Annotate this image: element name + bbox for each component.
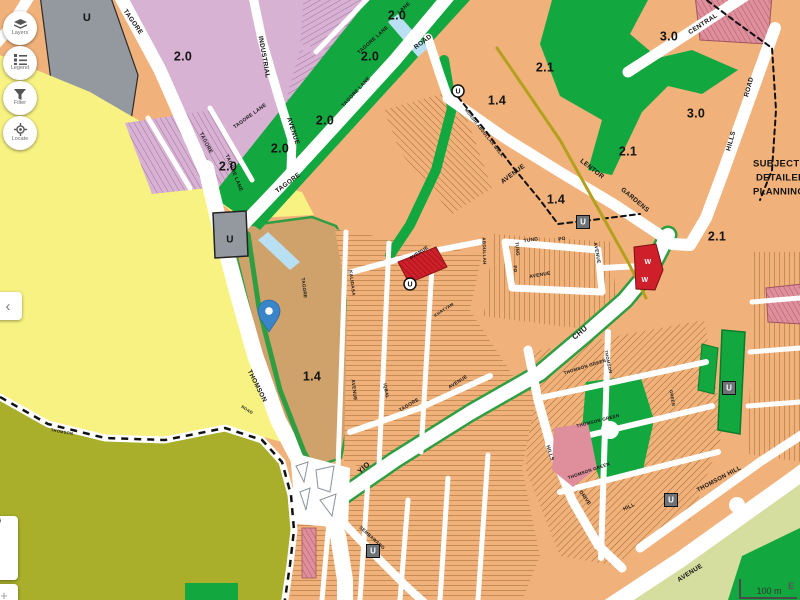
map-label: 2.1 [536, 60, 554, 74]
draw-polygon-tool[interactable] [0, 538, 16, 559]
layers-icon [14, 19, 27, 30]
u-marker-label: U [726, 384, 732, 393]
legend-icon [14, 54, 27, 65]
map-label: 2.0 [174, 49, 192, 63]
chevron-left-icon: ‹ [6, 298, 11, 315]
map-label: SUBJECT T [753, 159, 800, 170]
map-label: PLANNING [753, 187, 800, 198]
map-label: 2.1 [708, 229, 726, 243]
map-viewport: 2.02.02.02.02.02.02.12.12.11.41.41.43.03… [0, 0, 800, 600]
map-label: DETAILED [756, 173, 800, 184]
point-icon [0, 516, 1, 527]
map-label: 1.4 [303, 369, 321, 383]
park-small-bar [698, 344, 718, 394]
draw-toolbar [0, 516, 18, 580]
map-label: 3.0 [687, 106, 705, 120]
culdesac [729, 497, 745, 513]
zone-rose-row [302, 528, 316, 578]
street [602, 266, 640, 268]
filter-icon [14, 89, 26, 100]
map-label: 3.0 [660, 29, 678, 43]
map-label: 1.4 [488, 93, 506, 107]
draw-line-tool[interactable] [0, 517, 16, 538]
zone-rose-right [766, 284, 800, 324]
u-marker-label: U [580, 218, 586, 227]
zoom-in-button[interactable]: + [0, 584, 18, 600]
map-label: 2.0 [316, 113, 334, 127]
legend-button[interactable]: Legend [3, 46, 37, 80]
collapse-panel-button[interactable]: ‹ [0, 292, 22, 320]
u-marker-label: U [370, 547, 376, 556]
map-label: 2.1 [619, 144, 637, 158]
u-marker-label: U [668, 496, 674, 505]
map-label: 2.0 [271, 141, 289, 155]
u-marker-label: U [455, 88, 460, 95]
map-label: PO [513, 265, 519, 273]
map-label: U [83, 12, 91, 24]
plus-icon: + [0, 588, 8, 600]
map-label: W [642, 277, 649, 284]
filter-button[interactable]: Filter [3, 81, 37, 115]
attribution-text: E [788, 581, 794, 592]
culdesac [601, 421, 619, 439]
u-marker-label: U [407, 281, 412, 288]
locate-button-label: Locate [12, 137, 29, 143]
map-label: ABDULLAH [481, 237, 487, 265]
park-bottom-strip [185, 583, 238, 600]
map-label: 1.4 [547, 192, 565, 206]
map-label: W [645, 259, 652, 266]
scale-bar-label: 100 m [756, 586, 781, 596]
lots-right-edge [748, 252, 800, 462]
filter-button-label: Filter [14, 101, 26, 107]
layers-button[interactable]: Layers [3, 11, 37, 45]
draw-point-tool[interactable] [0, 559, 16, 580]
map-render-root: 2.02.02.02.02.02.02.12.12.11.41.41.43.03… [0, 0, 800, 600]
map-canvas[interactable]: 2.02.02.02.02.02.02.12.12.11.41.41.43.03… [0, 0, 800, 600]
legend-button-label: Legend [11, 66, 29, 72]
locate-button[interactable]: Locate [3, 116, 37, 150]
map-label: PO [558, 236, 566, 243]
layers-button-label: Layers [12, 31, 29, 37]
map-label: U [226, 235, 234, 246]
locate-icon [14, 123, 27, 136]
